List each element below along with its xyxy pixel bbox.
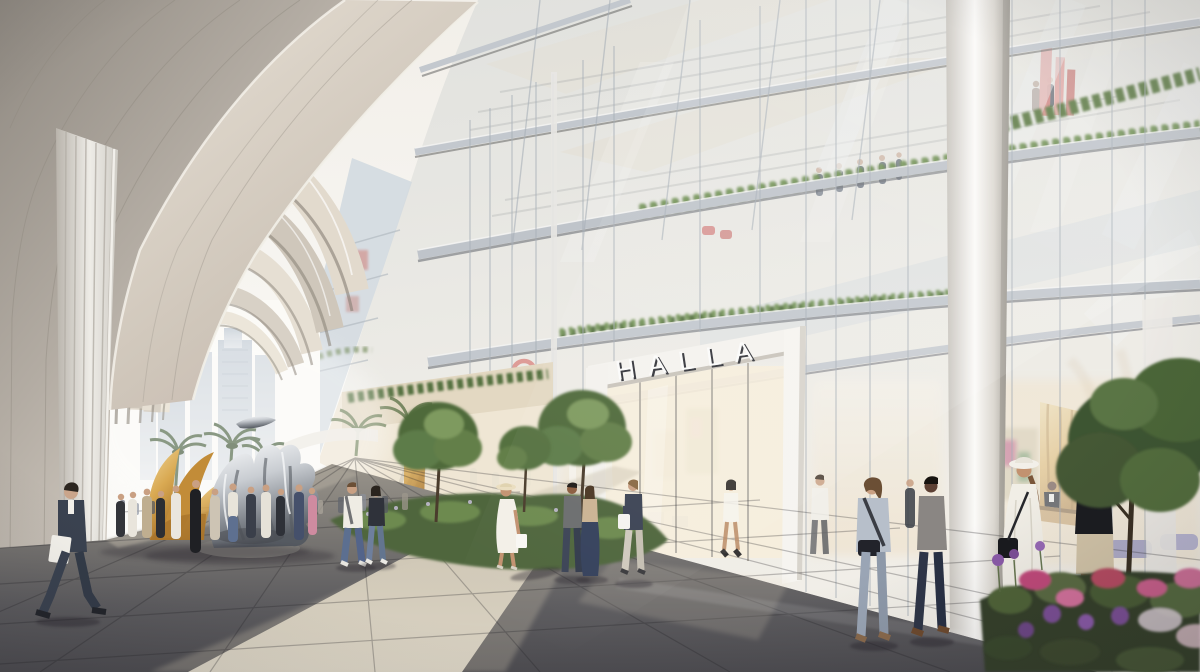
vignette <box>0 0 1200 672</box>
rendering-stage: HALLA HALLA <box>0 0 1200 672</box>
scene-canvas: HALLA HALLA <box>0 0 1200 672</box>
